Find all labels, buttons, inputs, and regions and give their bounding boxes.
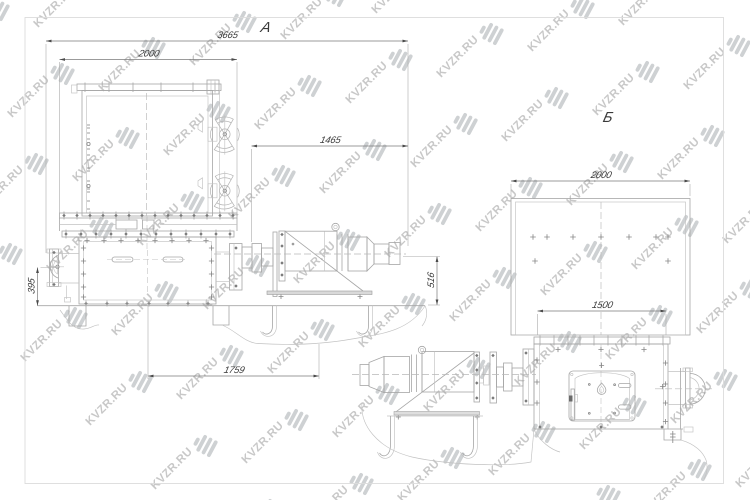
svg-text:3665: 3665 xyxy=(216,30,240,41)
svg-text:1465: 1465 xyxy=(319,135,343,146)
svg-text:1500: 1500 xyxy=(591,300,615,311)
svg-text:1759: 1759 xyxy=(223,365,247,376)
svg-text:2000: 2000 xyxy=(589,170,614,181)
svg-text:2000: 2000 xyxy=(136,48,161,59)
